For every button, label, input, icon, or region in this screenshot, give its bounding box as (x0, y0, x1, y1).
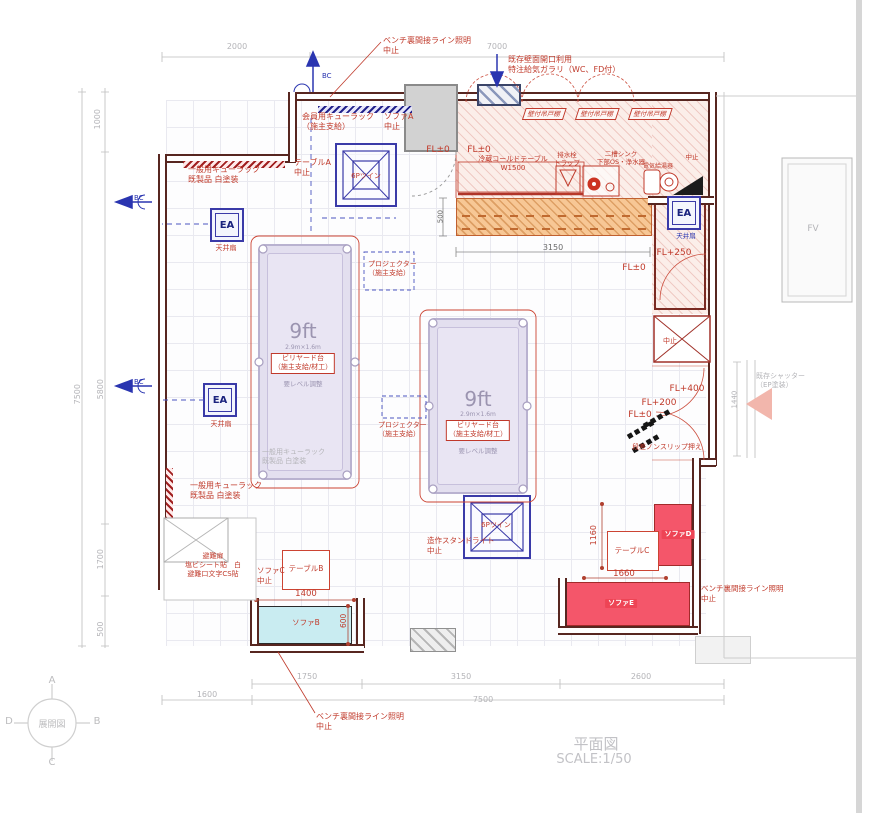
ea-symbol-3: EA (667, 196, 701, 230)
table-b (282, 550, 330, 590)
dim-1600: 1600 (197, 690, 217, 700)
dim-1440: 1440 (730, 391, 739, 409)
label-bc-left-1: BC (134, 194, 144, 203)
ea-label: EA (208, 388, 232, 412)
compass-letter-c: C (49, 757, 56, 768)
billiard-table-1-felt (267, 253, 343, 471)
ea-label: EA (672, 201, 696, 225)
member-cue-rack (318, 106, 412, 113)
ea-label: EA (215, 213, 239, 237)
wall (558, 626, 698, 635)
wall (250, 598, 259, 648)
label-bc-left-2: BC (134, 378, 144, 387)
outside-grey-box (695, 636, 751, 664)
note-bench-light-right: ベンチ裏間接ライン照明 中止 (701, 584, 784, 604)
note-bench-light-bottom: ベンチ裏間接ライン照明 中止 (316, 712, 404, 733)
kitchen-counter (456, 198, 652, 236)
ea-symbol-1: EA (210, 208, 244, 242)
dim-5800: 5800 (96, 379, 106, 399)
drawing-scale: SCALE:1/50 (556, 752, 631, 767)
wall (356, 598, 365, 648)
note-vent: 既存壁面開口利用 特注給気ガラリ（WC、FD付） (508, 55, 620, 76)
wall (250, 644, 364, 653)
wall (692, 458, 701, 634)
drawing-title: 平面図 (573, 733, 618, 754)
dim-2600: 2600 (631, 672, 651, 682)
dim-500-left: 500 (96, 622, 106, 637)
billiard-table-2-felt (437, 327, 519, 485)
table-c (607, 531, 659, 571)
sofa-d (654, 504, 692, 566)
entry-vestibule (404, 84, 458, 152)
floor-plan-canvas: EA EA EA A B C D 展開図 平面図 SCALE:1/50 ベンチ裏… (0, 0, 870, 813)
wall (558, 578, 567, 630)
dim-1750: 1750 (297, 672, 317, 682)
bottom-pillar-vent (410, 628, 456, 652)
sofa-b (258, 606, 352, 644)
supply-air-grille (477, 84, 521, 106)
dim-7000: 7000 (487, 42, 507, 52)
note-shutter: 既存シャッター （EP塗装） (756, 372, 805, 390)
dim-7500-bottom: 7500 (473, 695, 493, 705)
shutter-arrow (746, 388, 772, 420)
dim-3150-bottom: 3150 (451, 672, 471, 682)
dim-1700: 1700 (96, 549, 106, 569)
sofa-e (566, 582, 690, 626)
compass-letter-b: B (94, 716, 101, 727)
compass-letter-a: A (49, 675, 56, 686)
general-cue-rack-left (166, 468, 173, 526)
dim-1000: 1000 (93, 109, 103, 129)
ea-symbol-2: EA (203, 383, 237, 417)
billiard-table-2 (428, 318, 528, 494)
dim-7500-left: 7500 (73, 384, 83, 404)
general-cue-rack-top (183, 161, 285, 168)
wall (288, 92, 414, 101)
label-bc-top: BC (322, 72, 332, 81)
note-bench-light-top: ベンチ裏間接ライン照明 中止 (383, 36, 471, 57)
building-edge (856, 0, 862, 813)
billiard-table-1 (258, 244, 352, 480)
dim-2000: 2000 (227, 42, 247, 52)
label-fv: FV (807, 224, 818, 236)
compass-center-label: 展開図 (38, 717, 65, 730)
compass-letter-d: D (5, 716, 13, 727)
wall (708, 92, 717, 466)
wall (288, 92, 297, 162)
